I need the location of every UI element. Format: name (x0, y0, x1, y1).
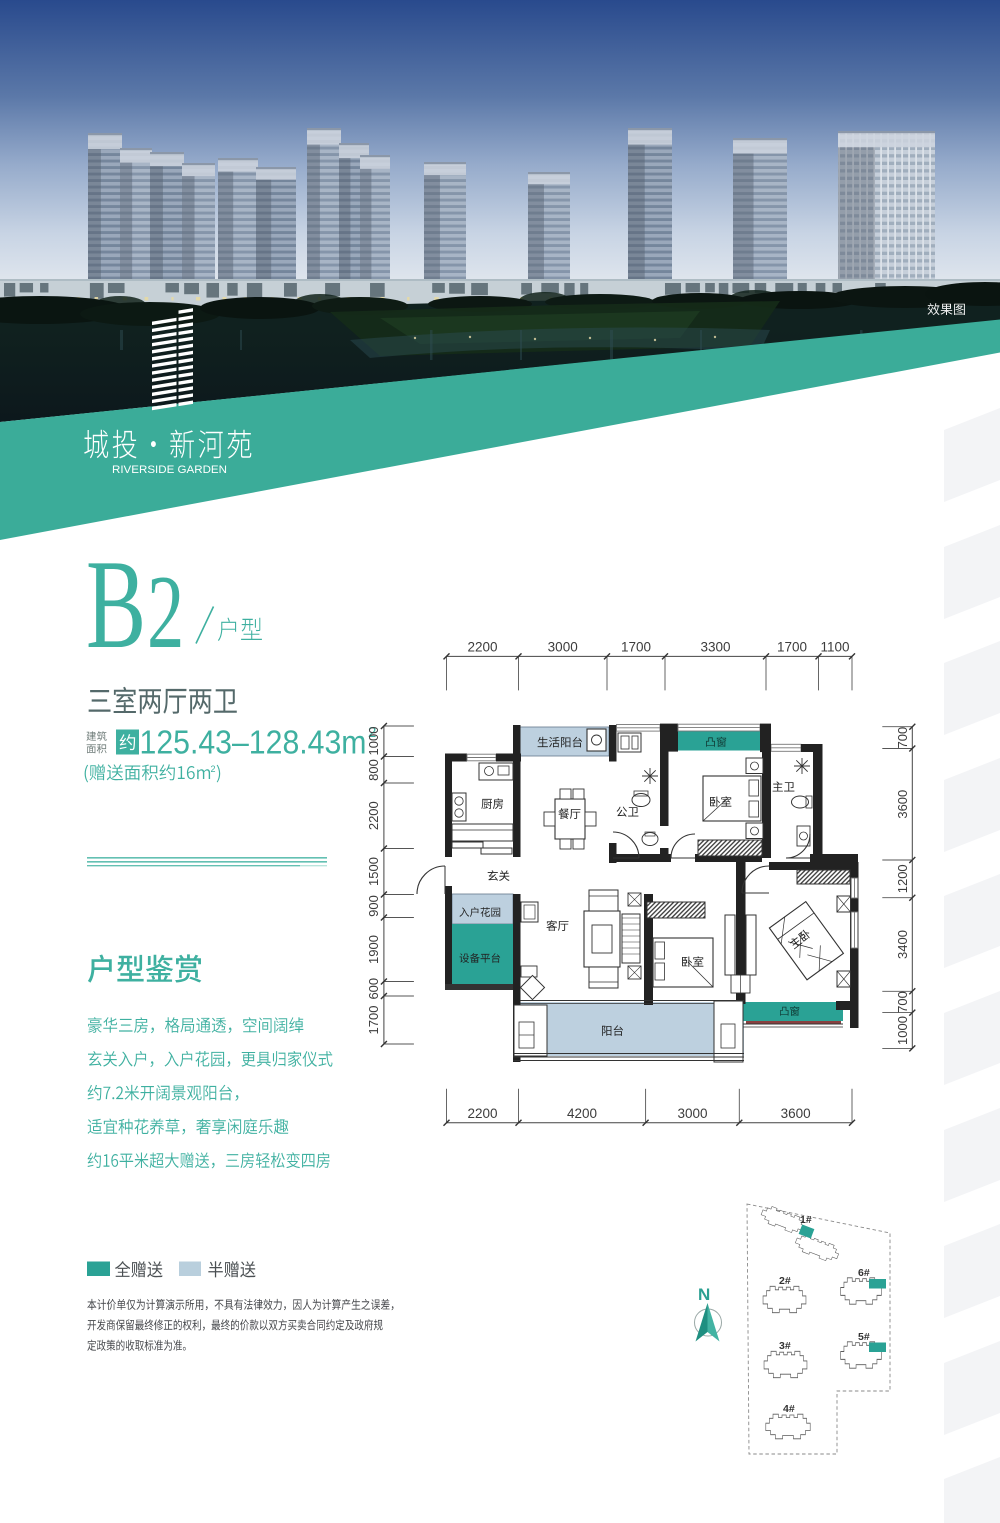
svg-text:2#: 2# (779, 1275, 791, 1287)
svg-text:2: 2 (147, 554, 184, 670)
svg-text:3300: 3300 (700, 640, 730, 655)
svg-text:B: B (86, 534, 146, 675)
svg-text:600: 600 (366, 978, 381, 1000)
svg-text:2200: 2200 (467, 1106, 497, 1121)
svg-text:2200: 2200 (467, 640, 497, 655)
svg-text:700: 700 (895, 727, 910, 749)
svg-text:3000: 3000 (548, 640, 578, 655)
svg-text:1500: 1500 (366, 857, 381, 886)
svg-text:6#: 6# (858, 1267, 870, 1279)
svg-text:1#: 1# (800, 1214, 812, 1226)
svg-text:2: 2 (211, 764, 216, 774)
svg-text:1700: 1700 (621, 640, 651, 655)
svg-text:3400: 3400 (895, 930, 910, 959)
svg-text:900: 900 (366, 895, 381, 917)
svg-text:125.43–128.43m: 125.43–128.43m (140, 724, 367, 761)
svg-text:4200: 4200 (567, 1106, 597, 1121)
svg-text:3600: 3600 (781, 1106, 811, 1121)
svg-text:4#: 4# (783, 1403, 795, 1415)
svg-text:3600: 3600 (895, 790, 910, 819)
svg-text:700: 700 (895, 991, 910, 1013)
svg-text:1200: 1200 (895, 864, 910, 893)
svg-text:2200: 2200 (366, 801, 381, 830)
svg-text:1100: 1100 (820, 640, 849, 655)
svg-text:1900: 1900 (366, 935, 381, 964)
svg-text:1700: 1700 (366, 1006, 381, 1035)
svg-text:5#: 5# (858, 1331, 870, 1343)
svg-text:1000: 1000 (366, 727, 381, 756)
svg-text:N: N (698, 1285, 710, 1304)
svg-text:RIVERSIDE GARDEN: RIVERSIDE GARDEN (112, 464, 227, 476)
svg-text:1700: 1700 (777, 640, 807, 655)
svg-text:3000: 3000 (677, 1106, 707, 1121)
svg-text:3#: 3# (779, 1340, 791, 1352)
svg-text:800: 800 (366, 759, 381, 781)
svg-text:1000: 1000 (895, 1016, 910, 1045)
